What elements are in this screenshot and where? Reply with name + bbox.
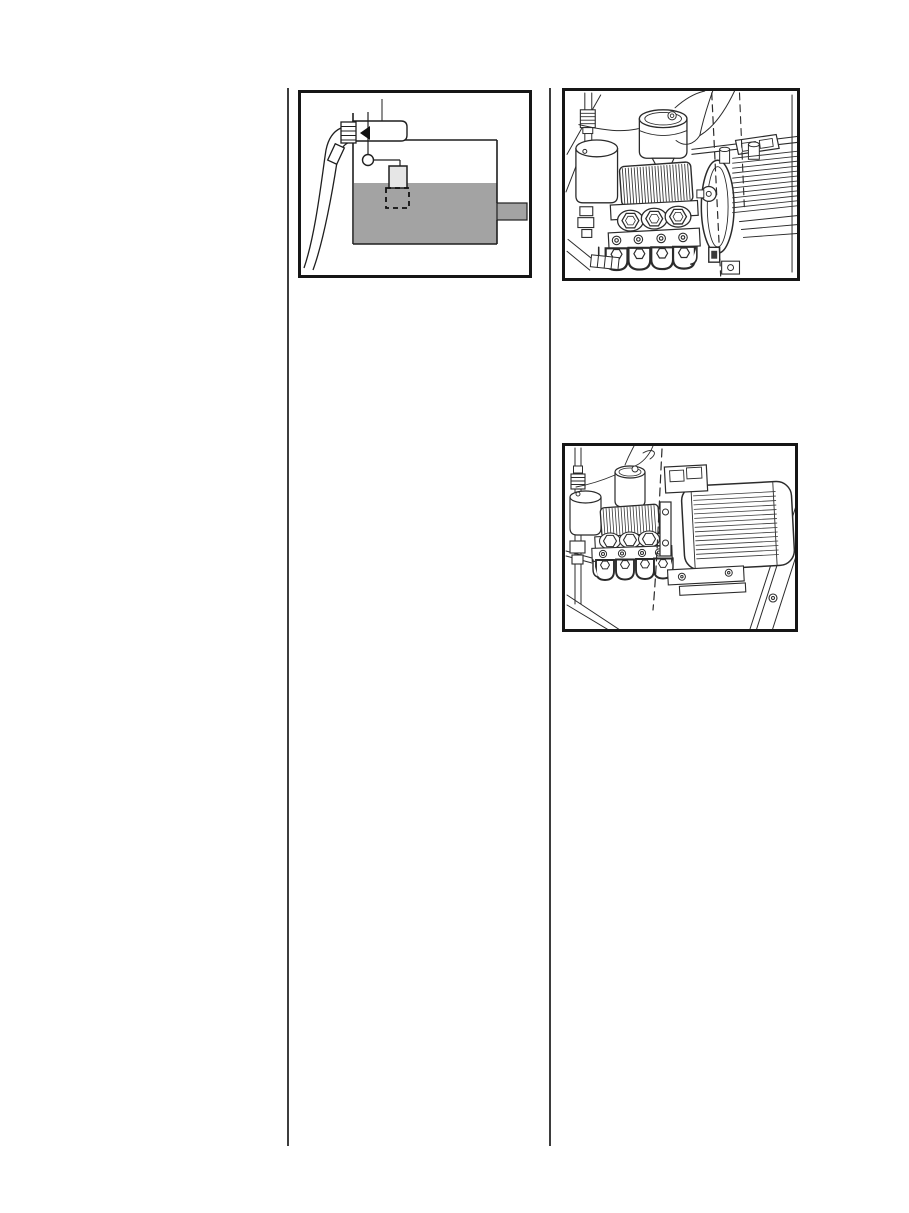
filter-box: [389, 166, 407, 188]
canister: [576, 140, 618, 237]
hose-thread-block: [580, 110, 595, 134]
finned-crankcase: [619, 162, 693, 206]
coupling-rail: [660, 502, 671, 556]
canister: [570, 491, 601, 535]
threaded-fitting: [341, 122, 356, 143]
outlet-pipe: [497, 203, 527, 220]
float-pivot: [363, 155, 374, 166]
ladder-bracket: [590, 255, 619, 270]
column-divider-right: [549, 88, 551, 1146]
tank-diagram-art: [301, 93, 529, 275]
figure-pump-motor: [562, 443, 798, 632]
float-valve-housing: [353, 121, 407, 141]
electric-motor: [681, 481, 795, 571]
motor-feet: [668, 566, 746, 596]
manual-page: [0, 0, 909, 1213]
hex-plugs: [618, 206, 691, 231]
pump-closeup-art: [565, 91, 797, 278]
filter-link: [374, 160, 401, 166]
figure-tank-diagram: [298, 90, 532, 278]
tank-liquid: [354, 183, 497, 244]
figure-pump-closeup: [562, 88, 800, 281]
terminal-box: [664, 465, 707, 493]
motor-fins: [733, 151, 797, 212]
pump-motor-art: [565, 446, 795, 629]
column-divider-left: [287, 88, 289, 1146]
hose-coupling: [328, 144, 345, 165]
